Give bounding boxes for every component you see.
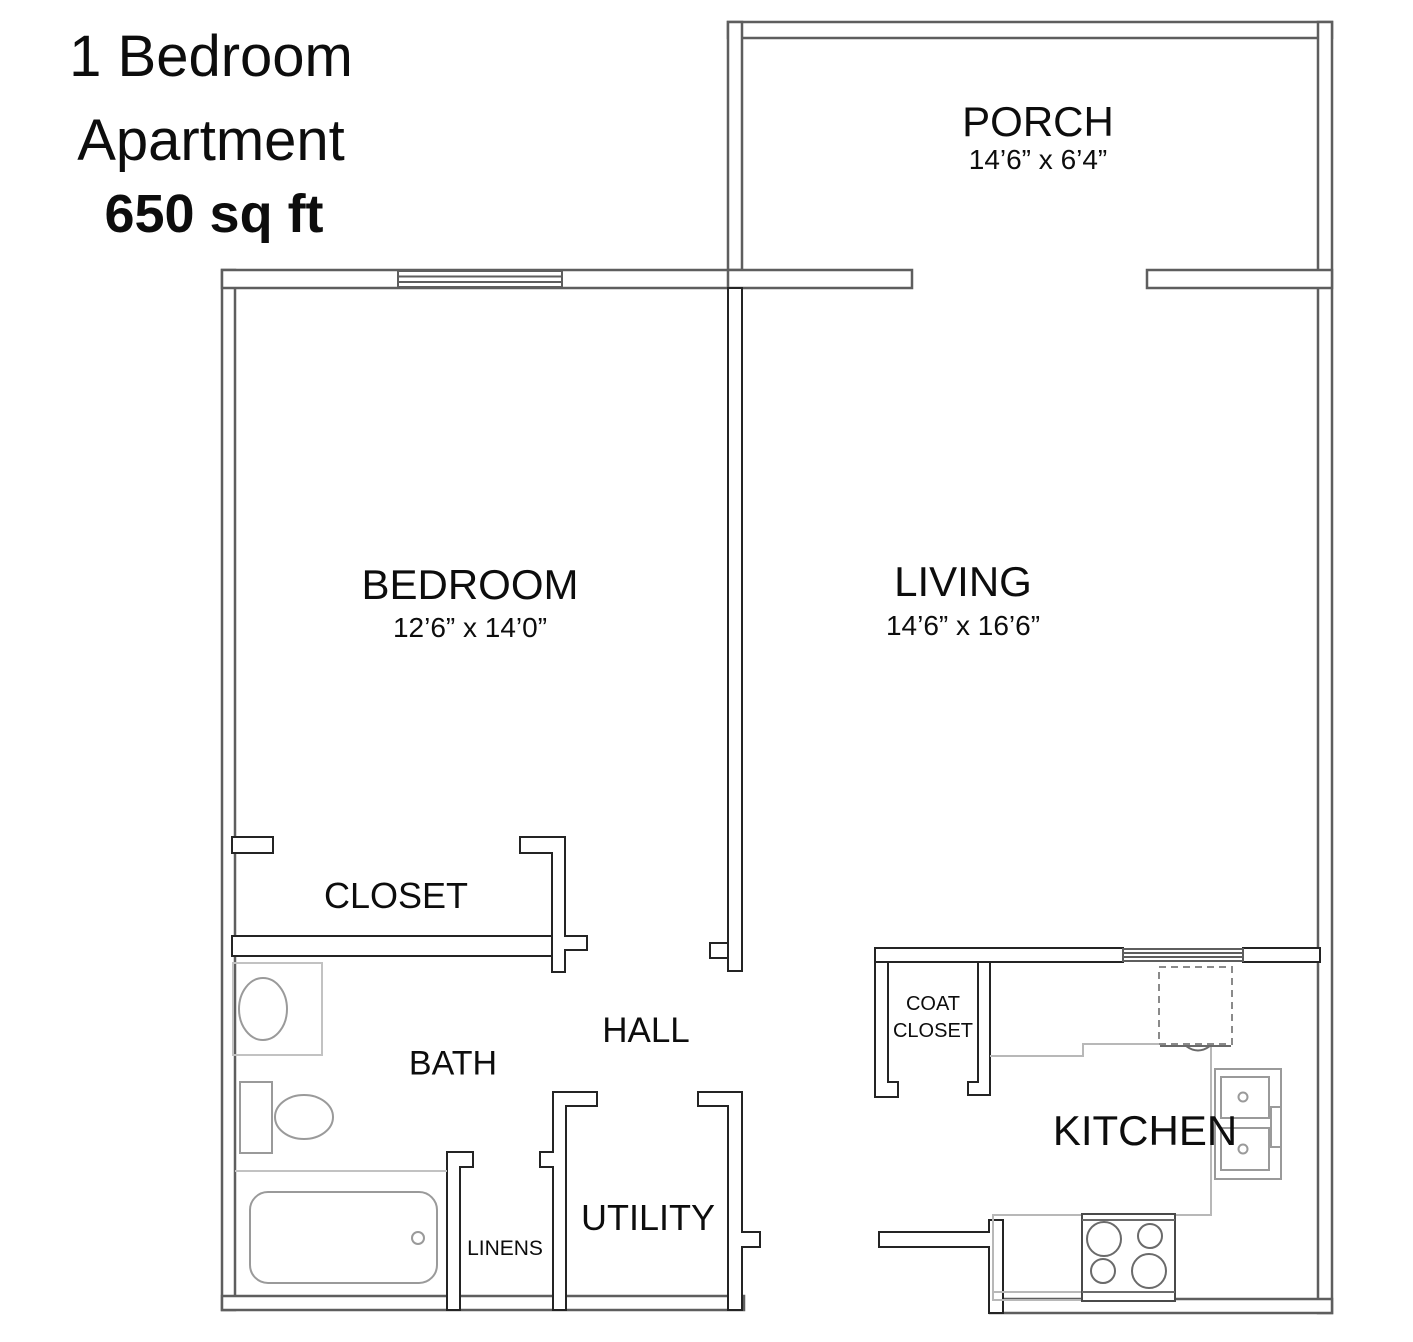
room-dims-porch: 14’6” x 6’4” — [969, 144, 1108, 176]
refrigerator — [1159, 967, 1232, 1051]
coat-closet-line1: COAT — [893, 991, 973, 1018]
room-label-bedroom: BEDROOM — [361, 561, 578, 609]
bathtub — [235, 1171, 447, 1283]
kitchen-pass-through-window — [1123, 949, 1243, 961]
stove — [1082, 1214, 1175, 1301]
room-label-kitchen: KITCHEN — [1053, 1107, 1237, 1155]
plan-title-line2: Apartment — [77, 112, 345, 170]
toilet — [240, 1082, 333, 1153]
room-label-living: LIVING — [894, 558, 1032, 606]
floor-plan: 1 Bedroom Apartment 650 sq ft PORCH 14’6… — [0, 0, 1413, 1342]
room-label-utility: UTILITY — [581, 1197, 715, 1239]
interior-walls — [232, 288, 1320, 1313]
bath-sink — [239, 978, 287, 1040]
room-label-hall: HALL — [602, 1011, 690, 1051]
room-label-porch: PORCH — [962, 98, 1114, 146]
bedroom-window — [398, 271, 562, 287]
room-label-closet: CLOSET — [324, 875, 468, 917]
room-dims-bedroom: 12’6” x 14’0” — [393, 612, 547, 644]
plan-title-area: 650 sq ft — [104, 187, 323, 241]
coat-closet-line2: CLOSET — [893, 1018, 973, 1045]
room-label-bath: BATH — [409, 1045, 497, 1084]
plan-title-line1: 1 Bedroom — [69, 28, 353, 86]
room-label-linens: LINENS — [467, 1237, 543, 1261]
room-label-coat-closet: COAT CLOSET — [893, 991, 973, 1045]
room-dims-living: 14’6” x 16’6” — [886, 610, 1040, 642]
